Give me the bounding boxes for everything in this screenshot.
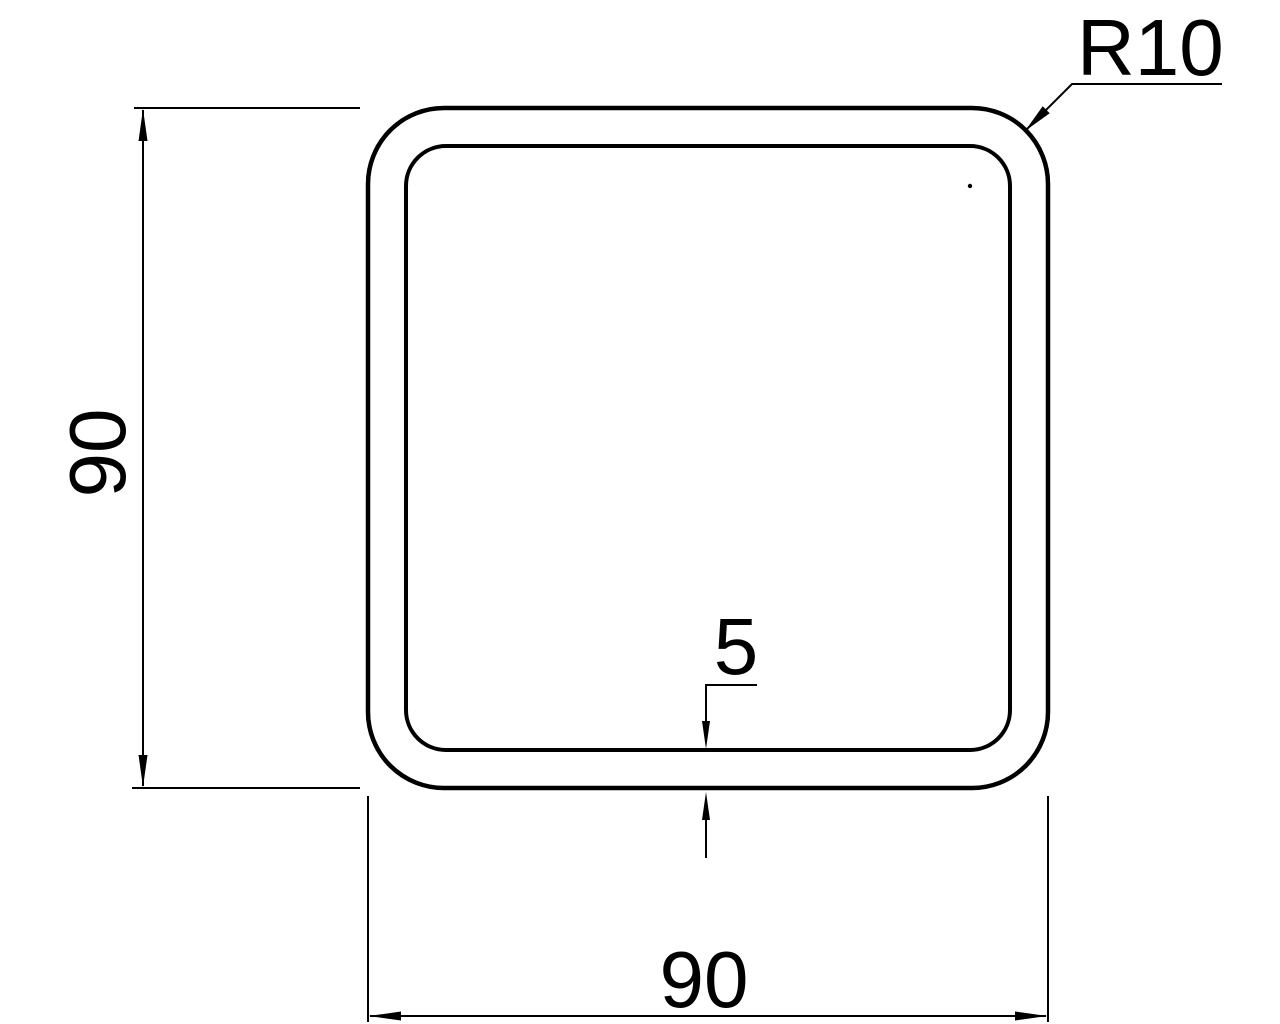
thickness-dimension: 5 (702, 602, 758, 858)
height-dimension: 90 (53, 108, 360, 788)
width-dim-label: 90 (660, 935, 749, 1024)
height-dim-arrow-down-icon (139, 755, 148, 787)
height-dim-label: 90 (53, 409, 142, 498)
thickness-dim-arrow-down-icon (702, 721, 710, 749)
drawing-page: 90 90 5 R10 (0, 0, 1280, 1024)
inner-profile (406, 146, 1010, 750)
height-dim-arrow-up-icon (139, 109, 148, 141)
technical-drawing-canvas: 90 90 5 R10 (0, 0, 1280, 1024)
radius-leader-arrow-icon (1025, 106, 1050, 131)
thickness-dim-arrow-up-icon (702, 792, 710, 820)
radius-center-point (968, 184, 972, 188)
thickness-dim-label: 5 (714, 602, 759, 691)
radius-dim-label: R10 (1077, 3, 1224, 92)
width-dim-arrow-left-icon (369, 1012, 401, 1021)
radius-callout: R10 (1025, 3, 1224, 131)
width-dimension: 90 (368, 796, 1048, 1024)
width-dim-arrow-right-icon (1015, 1012, 1047, 1021)
